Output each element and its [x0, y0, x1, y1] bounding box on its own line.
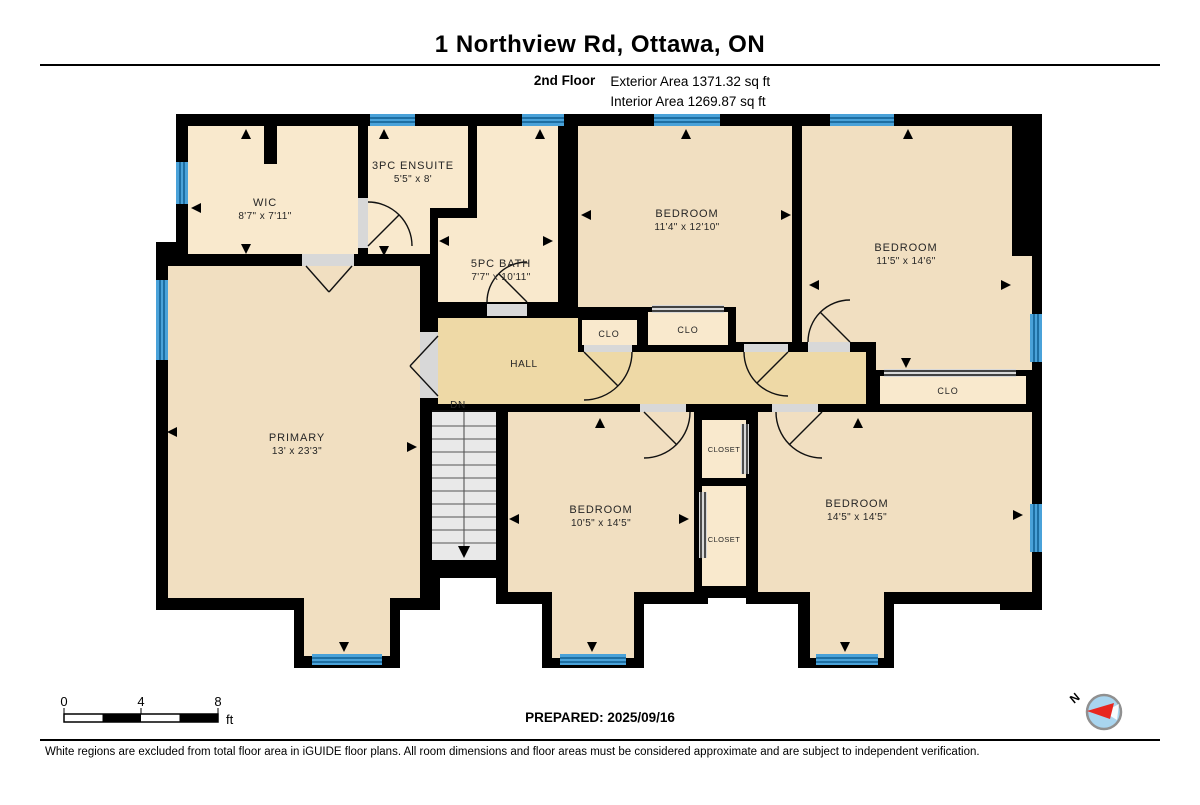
room-primary: [168, 266, 420, 656]
label-closet-bottom: CLOSET: [708, 535, 740, 544]
dims-bedroom-se: 14'5" x 14'5": [827, 512, 887, 523]
label-clo-a: CLO: [598, 329, 619, 339]
disclaimer-text: White regions are excluded from total fl…: [45, 746, 1170, 758]
window-icon: [522, 114, 564, 126]
label-primary: PRIMARY: [269, 432, 325, 444]
window-icon: [560, 654, 626, 665]
window-icon: [1030, 504, 1042, 552]
floor-label: 2nd Floor: [534, 73, 596, 113]
staircase: [432, 411, 496, 560]
window-icon: [654, 114, 720, 126]
dims-primary: 13' x 23'3": [272, 446, 322, 457]
label-stairs-dn: DN: [450, 400, 466, 411]
label-hall: HALL: [510, 359, 537, 370]
floor-plan-drawing: WIC 8'7" x 7'11" 3PC ENSUITE 5'5" x 8' 5…: [0, 110, 1200, 690]
page-title: 1 Northview Rd, Ottawa, ON: [0, 31, 1200, 59]
dims-ensuite: 5'5" x 8': [394, 174, 432, 185]
dims-wic: 8'7" x 7'11": [238, 211, 291, 222]
window-icon: [1030, 314, 1042, 362]
label-bedroom-e: BEDROOM: [874, 242, 937, 254]
label-bedroom-ne: BEDROOM: [655, 208, 718, 220]
wall-stub: [264, 126, 277, 164]
interior-area: Interior Area 1269.87 sq ft: [610, 93, 770, 110]
scale-tick-0: 0: [60, 694, 67, 709]
scale-tick-4: 4: [137, 694, 144, 709]
slider-clo-b: [652, 305, 724, 313]
label-closet-top: CLOSET: [708, 445, 740, 454]
scale-tick-8: 8: [214, 694, 221, 709]
header-divider: [40, 64, 1160, 66]
prepared-date: PREPARED: 2025/09/16: [0, 710, 1200, 725]
compass-icon: N: [1056, 682, 1146, 742]
dims-bedroom-ne: 11'4" x 12'10": [654, 222, 719, 233]
dims-bedroom-s: 10'5" x 14'5": [571, 518, 631, 529]
slider-closet-bottom: [699, 492, 707, 558]
label-wic: WIC: [253, 197, 277, 209]
label-bath: 5PC BATH: [471, 258, 531, 270]
label-clo-e: CLO: [937, 386, 958, 396]
label-bedroom-s: BEDROOM: [569, 504, 632, 516]
floor-plan-page: { "header": { "title": "1 Northview Rd, …: [0, 0, 1200, 805]
slider-closet-top: [741, 424, 749, 474]
window-icon: [312, 654, 382, 665]
dims-bath: 7'7" x 10'11": [471, 272, 530, 283]
window-icon: [370, 114, 415, 126]
window-icon: [176, 162, 188, 204]
compass-north-label: N: [1067, 690, 1083, 706]
dims-bedroom-e: 11'5" x 14'6": [876, 256, 935, 267]
exterior-area: Exterior Area 1371.32 sq ft: [610, 73, 770, 90]
window-icon: [830, 114, 894, 126]
floor-info: 2nd Floor Exterior Area 1371.32 sq ft In…: [52, 73, 1200, 113]
label-bedroom-se: BEDROOM: [825, 498, 888, 510]
label-clo-b: CLO: [677, 325, 698, 335]
window-icon: [816, 654, 878, 665]
room-interiors: [168, 126, 1032, 658]
area-values: Exterior Area 1371.32 sq ft Interior Are…: [610, 73, 770, 113]
label-ensuite: 3PC ENSUITE: [372, 160, 454, 172]
slider-clo-e: [884, 369, 1016, 377]
room-bedroom-s: [508, 412, 694, 658]
window-icon: [156, 280, 168, 360]
footer-divider: [40, 739, 1160, 741]
